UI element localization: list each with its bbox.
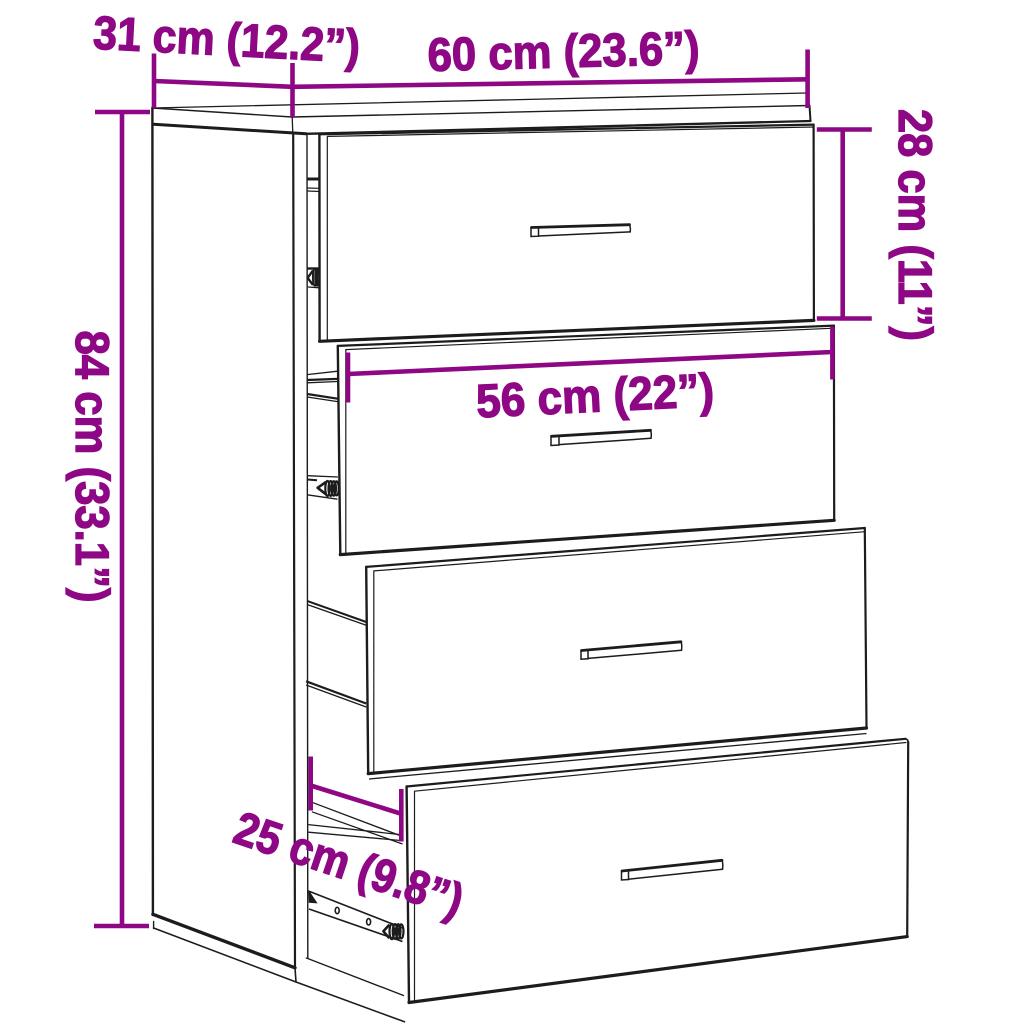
- svg-text:60 cm (23.6”): 60 cm (23.6”): [427, 21, 700, 81]
- svg-text:84 cm (33.1”): 84 cm (33.1”): [66, 331, 119, 603]
- svg-text:28 cm (11”): 28 cm (11”): [889, 109, 942, 341]
